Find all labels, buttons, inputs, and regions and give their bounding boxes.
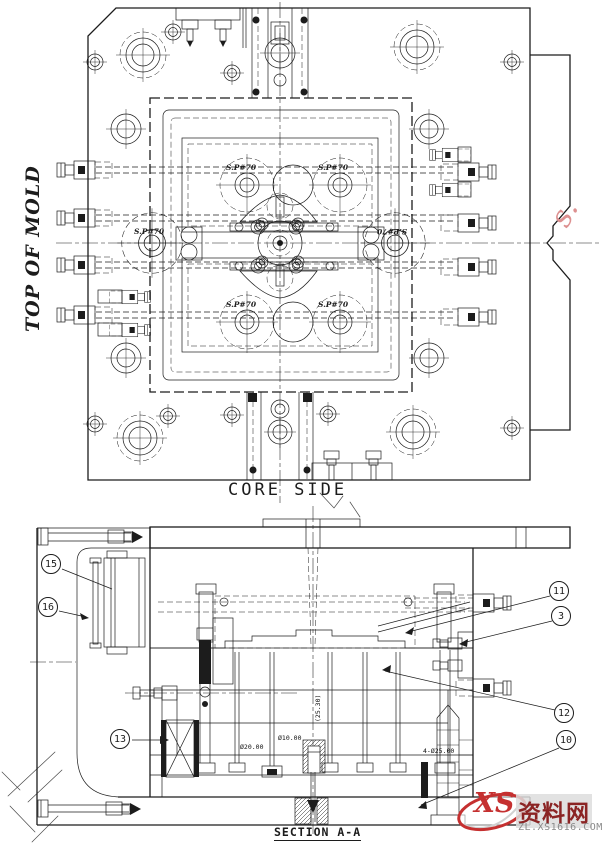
balloon-13: 13: [110, 729, 130, 749]
dim-label: 4-Ø25.00: [423, 747, 454, 755]
spring-label: S.P#70: [226, 163, 256, 172]
spring-label: S.P#70: [318, 163, 348, 172]
bottom-right-block: [312, 451, 392, 480]
section-title: SECTION A-A: [274, 825, 361, 841]
dim-label: Ø20.00: [240, 743, 263, 751]
watermark-site-url: ZL.XS1616.COM: [518, 822, 603, 833]
spring-label: S.P#70: [377, 227, 407, 236]
balloon-12: 12: [554, 703, 574, 723]
top-edge-clamp: [176, 8, 246, 48]
top-view-linework: [56, 2, 600, 503]
xs-logo-text: XS: [474, 788, 514, 819]
balloon-16: 16: [38, 597, 58, 617]
dim-label: Ø10.00: [278, 734, 301, 742]
balloon-3: 3: [551, 606, 571, 626]
spring-label: S.P#70: [226, 300, 256, 309]
spring-label: S.P#70: [318, 300, 348, 309]
balloon-11: 11: [549, 581, 569, 601]
top-of-mold-label: TOP OF MOLD: [22, 165, 44, 332]
support-pillar: [161, 720, 199, 777]
balloon-10: 10: [556, 730, 576, 750]
bottom-channel: [156, 392, 340, 480]
spring-label: S.P#70: [134, 227, 164, 236]
core-side-label: CORE SIDE: [228, 480, 347, 500]
mold-blueprint-page: TOP OF MOLD CORE SIDE SECTION A-A S.P#70…: [0, 0, 603, 844]
drawing-linework: [0, 0, 603, 844]
dim-label: (25.30): [314, 695, 322, 722]
balloon-15: 15: [41, 554, 61, 574]
